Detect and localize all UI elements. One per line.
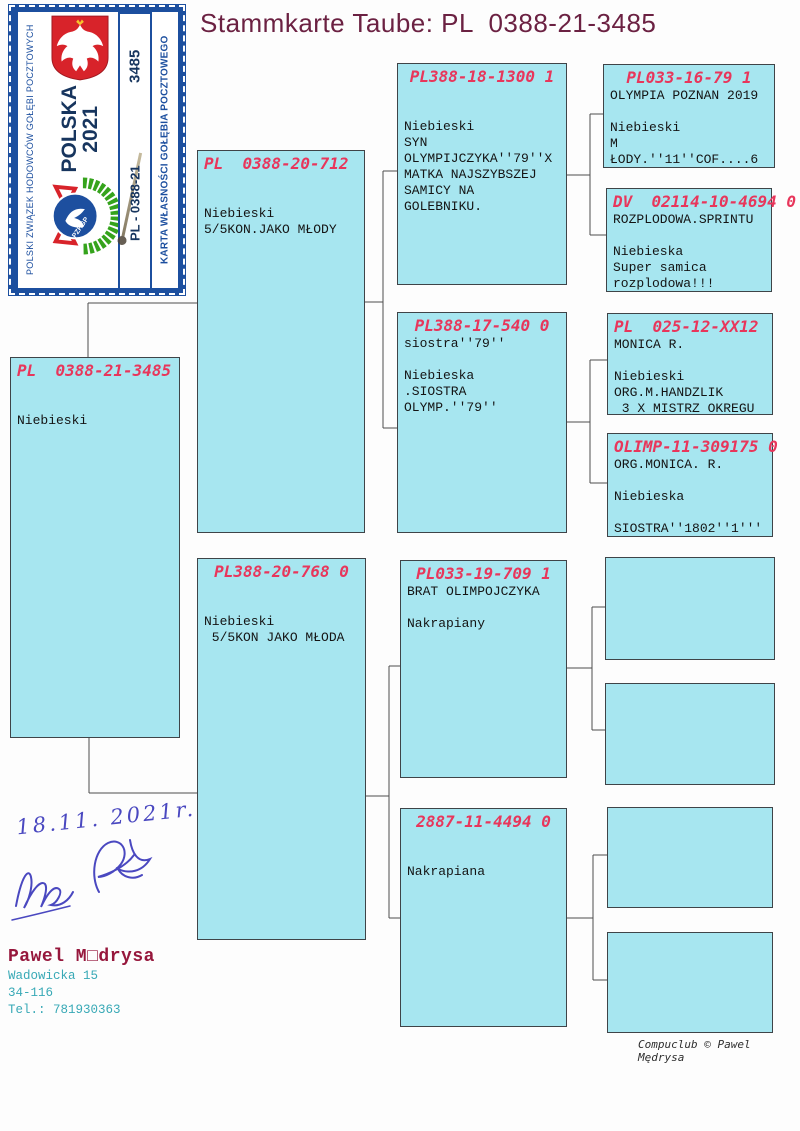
ring-code: PL388-17-540 0: [398, 313, 566, 336]
pedigree-box-mfm-empty: [605, 683, 775, 785]
bird-description: OLYMPIA POZNAN 2019 Niebieski M ŁODY.''1…: [604, 88, 774, 168]
signature: [2, 828, 177, 936]
pedigree-box-subject: PL 0388-21-3485 Niebieski: [10, 357, 180, 738]
pedigree-box-mother: PL388-20-768 0 Niebieski 5/5KON JAKO MŁO…: [197, 558, 366, 940]
pedigree-box-mff-empty: [605, 557, 775, 660]
ring-code: PL033-16-79 1: [604, 65, 774, 88]
owner-block: Pawel M□drysa Wadowicka 15 34-116 Tel.: …: [8, 946, 155, 1019]
bird-description: Nakrapiana: [401, 832, 566, 880]
bird-description: Niebieski SYN OLYMPIJCZYKA''79''X MATKA …: [398, 87, 566, 215]
pedigree-box-mmm-empty: [607, 932, 773, 1033]
ring-code: PL 025-12-XX12: [608, 314, 772, 337]
owner-street: Wadowicka 15: [8, 968, 155, 985]
ring-code: OLIMP-11-309175 0: [608, 434, 772, 457]
ring-code: PL388-20-768 0: [198, 559, 365, 582]
ring-code: PL 0388-20-712: [198, 151, 364, 174]
bird-description: siostra''79'' Niebieska .SIOSTRA OLYMP.'…: [398, 336, 566, 416]
bird-description: MONICA R. Niebieski ORG.M.HANDZLIK 3 X M…: [608, 337, 772, 417]
ring-code: PL033-19-709 1: [401, 561, 566, 584]
pedigree-box-mm: 2887-11-4494 0 Nakrapiana: [400, 808, 567, 1027]
ring-code: DV 02114-10-4694 0: [607, 189, 771, 212]
owner-postal: 34-116: [8, 985, 155, 1002]
pedigree-box-fm: PL388-17-540 0 siostra''79'' Niebieska .…: [397, 312, 567, 533]
pedigree-box-fmm: OLIMP-11-309175 0 ORG.MONICA. R. Niebies…: [607, 433, 773, 537]
pedigree-card-scan: Stammkarte Taube: PL 0388-21-3485 POLSKI…: [0, 0, 800, 1131]
pedigree-box-ff: PL388-18-1300 1 Niebieski SYN OLYMPIJCZY…: [397, 63, 567, 285]
owner-phone: Tel.: 781930363: [8, 1002, 155, 1019]
ring-code: PL388-18-1300 1: [398, 64, 566, 87]
bird-description: Niebieski 5/5KON.JAKO MŁODY: [198, 174, 364, 238]
bird-description: Niebieski 5/5KON JAKO MŁODA: [198, 582, 365, 646]
bird-description: ROZPLODOWA.SPRINTU Niebieska Super samic…: [607, 212, 771, 292]
ring-code: PL 0388-21-3485: [11, 358, 179, 381]
pedigree-box-fmf: PL 025-12-XX12 MONICA R. Niebieski ORG.M…: [607, 313, 773, 415]
pedigree-box-ffm: DV 02114-10-4694 0 ROZPLODOWA.SPRINTU Ni…: [606, 188, 772, 292]
ring-code: 2887-11-4494 0: [401, 809, 566, 832]
bird-description: BRAT OLIMPOJCZYKA Nakrapiany: [401, 584, 566, 632]
footer-credit: Compuclub © Pawel Mędrysa: [638, 1038, 800, 1064]
bird-description: Niebieski: [11, 381, 179, 429]
pedigree-box-fff: PL033-16-79 1 OLYMPIA POZNAN 2019 Niebie…: [603, 64, 775, 168]
pedigree-box-mmf-empty: [607, 807, 773, 908]
pedigree-box-father: PL 0388-20-712 Niebieski 5/5KON.JAKO MŁO…: [197, 150, 365, 533]
bird-description: ORG.MONICA. R. Niebieska SIOSTRA''1802''…: [608, 457, 772, 537]
pedigree-box-mf: PL033-19-709 1 BRAT OLIMPOJCZYKA Nakrapi…: [400, 560, 567, 778]
owner-name: Pawel M□drysa: [8, 946, 155, 968]
